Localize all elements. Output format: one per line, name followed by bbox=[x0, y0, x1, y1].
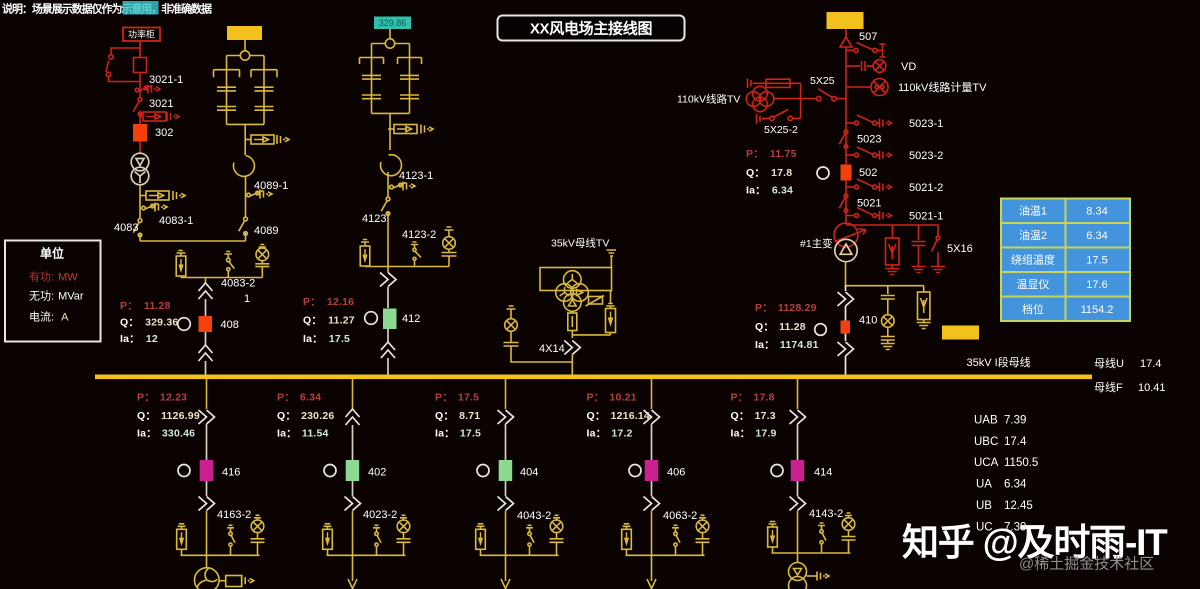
svg-text:10.41: 10.41 bbox=[1138, 382, 1166, 394]
svg-text:P：17.8: P：17.8 bbox=[731, 392, 775, 404]
svg-text:416: 416 bbox=[222, 467, 240, 479]
svg-text:17.4: 17.4 bbox=[1140, 358, 1161, 370]
svg-text:功率柜: 功率柜 bbox=[128, 29, 155, 40]
svg-text:P：12.16: P：12.16 bbox=[303, 296, 354, 308]
svg-text:UB: UB bbox=[976, 500, 992, 512]
svg-text:温显仪: 温显仪 bbox=[1017, 278, 1050, 291]
svg-text:4083-2: 4083-2 bbox=[221, 278, 255, 290]
svg-text:说明：场景展示数据仅作为示意用，非准确数据: 说明：场景展示数据仅作为示意用，非准确数据 bbox=[2, 2, 212, 16]
svg-text:@稀土掘金技术社区: @稀土掘金技术社区 bbox=[1019, 556, 1154, 573]
svg-text:Ia：11.54: Ia：11.54 bbox=[277, 428, 329, 440]
svg-text:油温1: 油温1 bbox=[1019, 204, 1047, 218]
svg-text:有功:MW: 有功:MW bbox=[29, 270, 78, 284]
svg-text:5X16: 5X16 bbox=[947, 243, 973, 255]
svg-text:17.5: 17.5 bbox=[1086, 255, 1107, 267]
svg-text:302: 302 bbox=[155, 127, 173, 139]
svg-text:P：1128.29: P：1128.29 bbox=[755, 302, 817, 314]
svg-text:P：11.28: P：11.28 bbox=[120, 300, 171, 312]
svg-text:P：10.21: P：10.21 bbox=[587, 392, 637, 404]
svg-text:4083: 4083 bbox=[114, 222, 138, 234]
svg-text:油温2: 油温2 bbox=[1019, 228, 1047, 242]
svg-text:17.6: 17.6 bbox=[1086, 279, 1107, 291]
svg-text:母线U: 母线U bbox=[1094, 356, 1124, 370]
svg-text:UAB: UAB bbox=[974, 415, 998, 427]
svg-text:4123-2: 4123-2 bbox=[402, 229, 436, 241]
svg-text:6.34: 6.34 bbox=[1086, 230, 1107, 242]
svg-text:8.34: 8.34 bbox=[1086, 206, 1107, 218]
svg-text:Ia：12: Ia：12 bbox=[120, 333, 158, 345]
svg-text:502: 502 bbox=[859, 167, 877, 179]
svg-text:4123: 4123 bbox=[362, 213, 386, 225]
svg-text:404: 404 bbox=[520, 467, 538, 479]
svg-text:1154.2: 1154.2 bbox=[1081, 304, 1114, 316]
svg-text:Q：329.36: Q：329.36 bbox=[120, 317, 178, 329]
svg-text:110kV线路计量TV: 110kV线路计量TV bbox=[898, 80, 987, 94]
svg-text:Q：230.26: Q：230.26 bbox=[277, 410, 334, 422]
svg-text:1: 1 bbox=[244, 293, 250, 305]
svg-text:P：11.75: P：11.75 bbox=[746, 148, 797, 160]
svg-text:4063-2: 4063-2 bbox=[663, 510, 697, 522]
svg-text:无功:MVar: 无功:MVar bbox=[29, 290, 84, 303]
svg-text:XX风电场主接线图: XX风电场主接线图 bbox=[530, 20, 653, 38]
svg-text:110kV线路TV: 110kV线路TV bbox=[677, 93, 740, 106]
svg-text:414: 414 bbox=[814, 467, 832, 479]
svg-text:5021: 5021 bbox=[857, 198, 881, 210]
svg-text:绕组温度: 绕组温度 bbox=[1011, 253, 1055, 267]
svg-text:4089: 4089 bbox=[254, 225, 278, 237]
svg-text:4X14: 4X14 bbox=[539, 343, 565, 355]
svg-text:P：6.34: P：6.34 bbox=[277, 392, 321, 404]
svg-text:5021-2: 5021-2 bbox=[909, 182, 943, 194]
svg-text:Q：11.28: Q：11.28 bbox=[755, 321, 806, 333]
svg-text:5X25-2: 5X25-2 bbox=[764, 124, 798, 136]
svg-text:Ia：330.46: Ia：330.46 bbox=[137, 428, 195, 440]
svg-text:P：12.23: P：12.23 bbox=[137, 392, 187, 404]
svg-text:Q：1126.99: Q：1126.99 bbox=[137, 410, 200, 422]
svg-text:Q：1216.14: Q：1216.14 bbox=[587, 410, 650, 422]
svg-text:4123-1: 4123-1 bbox=[399, 170, 433, 182]
svg-text:Ia：1174.81: Ia：1174.81 bbox=[755, 339, 819, 351]
svg-text:5023-1: 5023-1 bbox=[909, 118, 943, 130]
svg-text:35kV母线TV: 35kV母线TV bbox=[551, 237, 609, 250]
svg-text:5021-1: 5021-1 bbox=[909, 211, 943, 223]
svg-text:17.4: 17.4 bbox=[1004, 436, 1027, 448]
svg-text:Q：11.27: Q：11.27 bbox=[303, 315, 355, 327]
svg-text:12.45: 12.45 bbox=[1004, 500, 1033, 512]
svg-text:VD: VD bbox=[901, 61, 916, 73]
svg-text:329.86: 329.86 bbox=[379, 18, 407, 28]
svg-text:7.39: 7.39 bbox=[1004, 415, 1026, 427]
svg-text:UA: UA bbox=[976, 479, 992, 491]
svg-text:单位: 单位 bbox=[40, 246, 64, 261]
svg-text:1150.5: 1150.5 bbox=[1004, 457, 1038, 469]
svg-text:4163-2: 4163-2 bbox=[217, 509, 251, 521]
svg-text:6.34: 6.34 bbox=[1004, 479, 1027, 491]
svg-text:电流:A: 电流:A bbox=[29, 310, 69, 324]
svg-text:412: 412 bbox=[402, 313, 420, 325]
svg-text:档位: 档位 bbox=[1022, 302, 1044, 316]
svg-text:UBC: UBC bbox=[974, 436, 998, 448]
svg-text:5023-2: 5023-2 bbox=[909, 150, 943, 162]
svg-text:#1主变: #1主变 bbox=[800, 237, 833, 250]
svg-text:3021-1: 3021-1 bbox=[149, 74, 183, 86]
svg-text:507: 507 bbox=[859, 31, 877, 43]
svg-text:408: 408 bbox=[221, 319, 239, 331]
svg-text:402: 402 bbox=[368, 467, 386, 479]
svg-text:4083-1: 4083-1 bbox=[159, 215, 193, 227]
svg-text:4043-2: 4043-2 bbox=[517, 510, 551, 522]
svg-text:4089-1: 4089-1 bbox=[254, 180, 288, 192]
svg-text:P：17.5: P：17.5 bbox=[435, 392, 479, 404]
svg-text:406: 406 bbox=[667, 467, 685, 479]
svg-text:4143-2: 4143-2 bbox=[809, 508, 843, 520]
svg-text:4023-2: 4023-2 bbox=[363, 509, 397, 521]
svg-text:5X25: 5X25 bbox=[810, 75, 835, 87]
svg-text:35kV I段母线: 35kV I段母线 bbox=[967, 355, 1031, 369]
svg-text:5023: 5023 bbox=[857, 134, 881, 146]
svg-text:3021: 3021 bbox=[149, 98, 173, 110]
svg-text:410: 410 bbox=[859, 315, 877, 327]
svg-text:UCA: UCA bbox=[974, 457, 999, 469]
svg-text:母线F: 母线F bbox=[1094, 380, 1123, 394]
